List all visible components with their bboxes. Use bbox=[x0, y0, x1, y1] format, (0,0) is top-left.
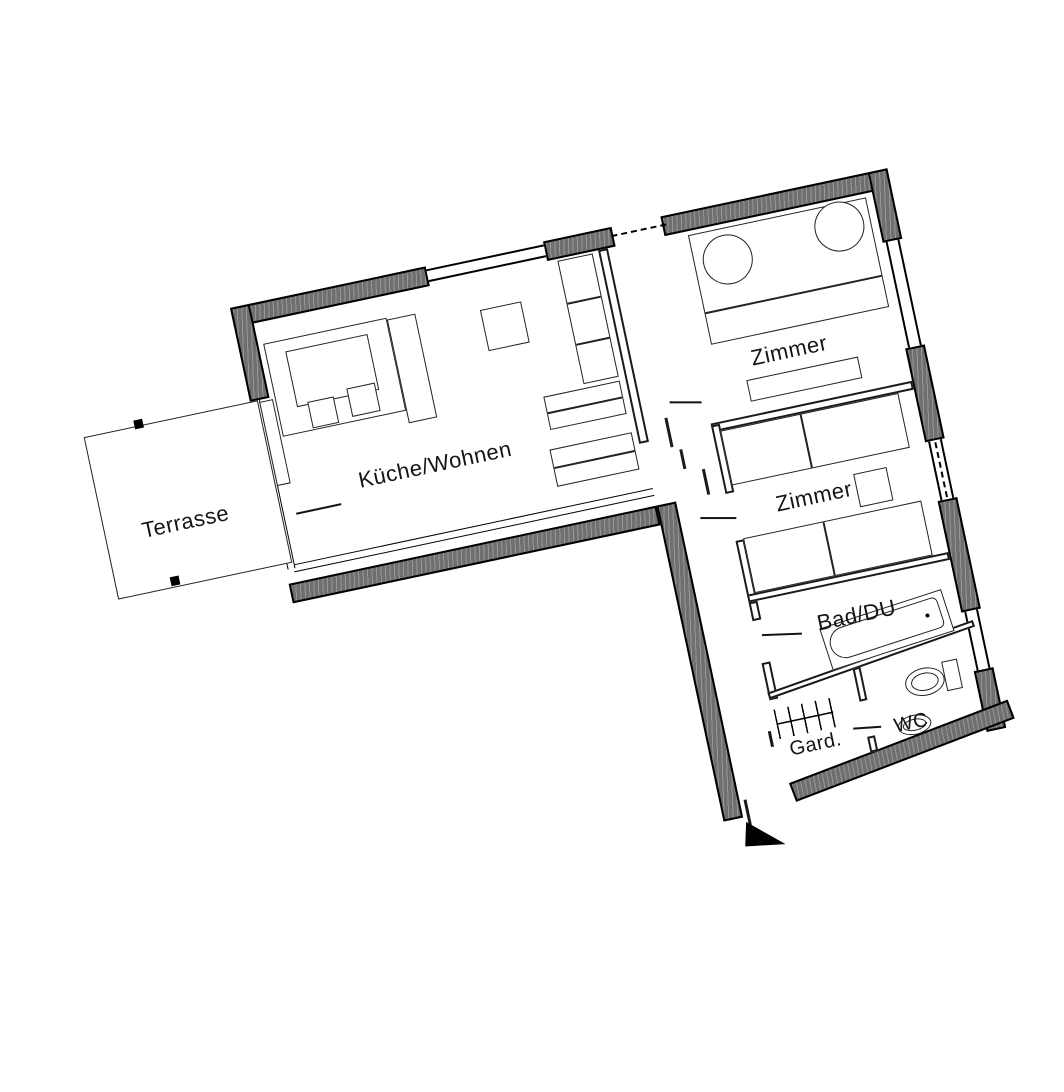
nightstand bbox=[853, 467, 893, 507]
leader-zimmer1 bbox=[670, 401, 702, 403]
window-east-zimmer1 bbox=[886, 239, 922, 348]
leader-wc bbox=[853, 726, 881, 730]
door-stub-zimmer1-b bbox=[679, 449, 686, 469]
window-east-bad bbox=[964, 609, 990, 671]
door-stub-entrance bbox=[744, 799, 752, 825]
wall-bad-corridor-a bbox=[749, 601, 762, 621]
leader-zimmer2 bbox=[700, 517, 736, 519]
room-label-kueche: Küche/Wohnen bbox=[356, 436, 514, 494]
wall-wc-door-a bbox=[853, 667, 868, 702]
wall-corridor-west bbox=[656, 502, 743, 822]
terrace-post-north bbox=[133, 419, 144, 430]
kitchen-counter-a bbox=[543, 381, 626, 430]
terrace-outline bbox=[84, 400, 293, 599]
toilet-cistern bbox=[941, 659, 963, 692]
door-stub-zimmer1-a bbox=[664, 418, 673, 448]
stool-1 bbox=[307, 396, 339, 428]
kitchen-island bbox=[480, 301, 530, 351]
leader-kueche bbox=[296, 503, 341, 515]
leader-bad bbox=[762, 633, 802, 636]
stool-2 bbox=[346, 383, 380, 417]
wall-east-pier1 bbox=[905, 344, 945, 442]
kitchen-counter-b bbox=[549, 432, 639, 487]
door-stub-gard bbox=[768, 731, 774, 747]
door-stub-corridor bbox=[702, 469, 710, 495]
opening-dashed-north bbox=[611, 224, 666, 238]
window-north-kitchen bbox=[426, 244, 546, 282]
wall-wc-door-b bbox=[867, 735, 878, 752]
floorplan-canvas: Terrasse Küche/Wohnen Zimmer Zimmer Bad/… bbox=[0, 0, 1064, 1092]
terrace-post-south bbox=[170, 576, 181, 587]
room-label-zimmer2: Zimmer bbox=[773, 476, 854, 518]
